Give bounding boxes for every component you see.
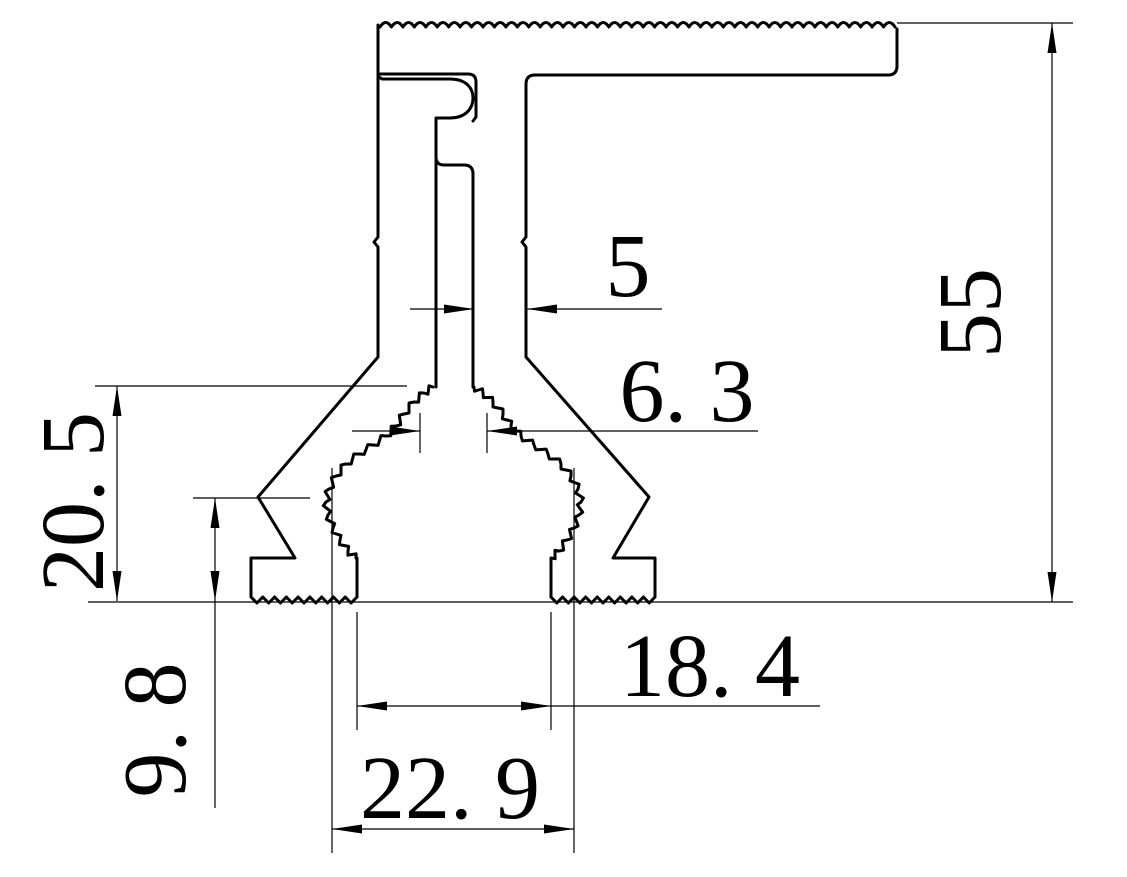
left-wall-and-left-foot — [251, 25, 378, 596]
profile-drawing-svg: 55 20. 5 9. 8 5 6. 3 18. 4 22. 9 — [0, 0, 1127, 877]
arrow-20-5-up — [113, 386, 122, 416]
arrow-6-3-right — [487, 427, 517, 436]
bulb-serrated-left-edge — [323, 386, 433, 558]
arrow-18-4-right — [521, 702, 551, 711]
arrow-22-9-right — [544, 825, 574, 834]
arrow-6-3-left — [390, 427, 420, 436]
bulb-serrated-right-edge — [474, 387, 583, 559]
arrow-18-4-left — [357, 702, 387, 711]
arrow-5-right — [527, 305, 557, 314]
dim-label-neck-width: 6. 3 — [620, 342, 755, 441]
dim-label-feet-inner-width: 18. 4 — [620, 617, 800, 716]
stem-right-wall-and-shelf — [436, 157, 473, 387]
arrow-55-up — [1048, 23, 1057, 53]
bar-right-and-right-wall — [522, 29, 897, 596]
arrow-9-8-up — [211, 498, 220, 528]
top-bar-serrated-edge — [380, 23, 895, 28]
technical-drawing-canvas: 55 20. 5 9. 8 5 6. 3 18. 4 22. 9 — [0, 0, 1127, 877]
dimension-lines — [113, 23, 1057, 834]
stem-left-wall-and-hook-cap — [379, 77, 473, 387]
dim-label-bulb-height: 20. 5 — [24, 412, 123, 592]
arrow-22-9-left — [332, 825, 362, 834]
dim-label-stem-width: 5 — [606, 217, 651, 316]
extension-lines — [88, 23, 1073, 853]
dim-label-foot-step-height: 9. 8 — [106, 663, 205, 798]
arrow-9-8-down — [211, 571, 220, 601]
arrow-5-left — [444, 305, 474, 314]
arrow-55-down — [1048, 572, 1057, 602]
dim-label-bulb-outer-width: 22. 9 — [360, 739, 540, 838]
dim-label-overall-height: 55 — [921, 268, 1020, 358]
dimension-labels: 55 20. 5 9. 8 5 6. 3 18. 4 22. 9 — [24, 217, 1020, 838]
